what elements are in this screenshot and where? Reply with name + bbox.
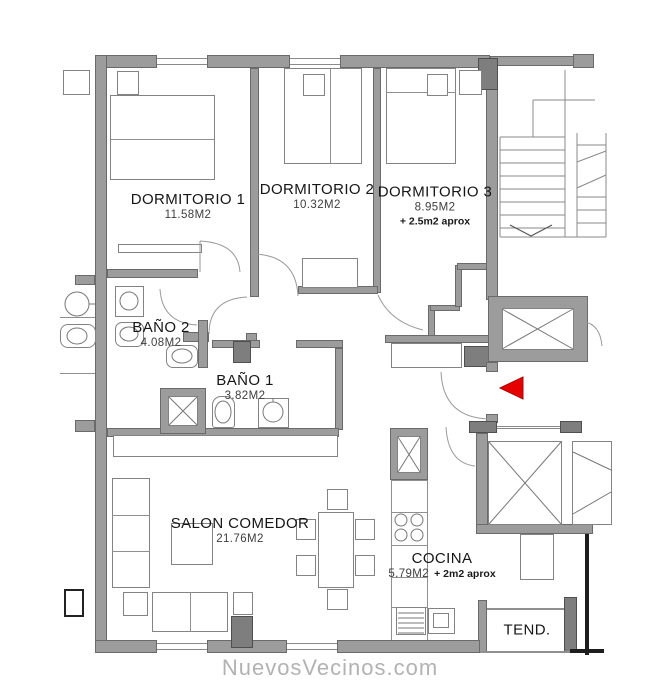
wall xyxy=(198,320,208,368)
room-area: 10.32M2 xyxy=(260,198,375,212)
wall xyxy=(457,263,487,270)
window xyxy=(497,423,560,432)
chimney-column xyxy=(231,616,253,648)
room-area-extra: + 2m2 aprox xyxy=(434,568,496,582)
wall xyxy=(476,524,593,534)
wall xyxy=(385,335,490,343)
nightstand xyxy=(117,71,139,95)
toilet xyxy=(115,286,144,317)
window xyxy=(157,55,207,68)
room-area: 4.08M2 xyxy=(132,336,189,350)
room-area: 21.76M2 xyxy=(171,532,310,546)
stairs xyxy=(500,70,606,237)
wall xyxy=(340,55,490,68)
wall xyxy=(564,597,577,652)
duct-shaft xyxy=(397,436,421,473)
neighbour-sink-icon xyxy=(65,292,89,316)
room-label-bano-1: BAÑO 1 3.82M2 xyxy=(216,372,273,404)
bed xyxy=(110,95,215,180)
stove-burner-icon xyxy=(395,514,407,526)
door-arc xyxy=(255,254,298,296)
wardrobe xyxy=(118,244,202,253)
elevator-shaft xyxy=(502,308,574,350)
wall xyxy=(75,275,95,285)
dining-table xyxy=(318,512,354,588)
watermark: NuevosVecinos.com xyxy=(222,655,438,681)
neighbour-window-frame xyxy=(64,589,84,617)
wall-pillar xyxy=(560,421,582,433)
wall xyxy=(335,348,343,430)
room-area: 5.79M2 xyxy=(388,567,429,581)
wall xyxy=(486,362,498,372)
chair xyxy=(327,489,348,510)
room-label-dormitorio-2: DORMITORIO 2 10.32M2 xyxy=(260,181,375,213)
wall-left xyxy=(95,55,107,652)
wall xyxy=(95,640,157,653)
window xyxy=(290,55,340,68)
room-label-dormitorio-1: DORMITORIO 1 11.58M2 xyxy=(131,191,246,223)
wall-pillar xyxy=(469,421,497,433)
room-label-dormitorio-3: DORMITORIO 3 8.95M2 + 2.5m2 aprox xyxy=(378,183,493,228)
bed-line xyxy=(110,139,215,140)
chair xyxy=(327,589,348,610)
room-name: DORMITORIO 3 xyxy=(378,183,493,200)
duct-shaft xyxy=(168,396,198,426)
room-name: TEND. xyxy=(504,621,551,638)
closet xyxy=(391,343,462,368)
stove-burner-icon xyxy=(411,529,423,541)
sideboard xyxy=(113,435,338,457)
stairs-direction-arrow xyxy=(510,225,552,236)
room-name: BAÑO 1 xyxy=(216,372,273,389)
kitchen-sink-basin xyxy=(433,613,449,628)
wall xyxy=(455,265,462,307)
wall xyxy=(75,420,95,432)
wall xyxy=(250,68,259,297)
wall xyxy=(585,534,589,655)
room-area: 8.95M2 xyxy=(378,201,493,215)
wall xyxy=(476,433,488,532)
sofa-line xyxy=(112,515,150,516)
wall xyxy=(60,317,95,318)
duct-shaft xyxy=(233,341,251,363)
bed-line xyxy=(330,68,331,164)
wall xyxy=(573,54,594,68)
door-arc xyxy=(200,241,240,272)
room-area-extra: + 2.5m2 aprox xyxy=(378,215,493,229)
wall xyxy=(487,608,565,610)
neighbour-fixture xyxy=(60,324,96,348)
door-arc xyxy=(209,297,247,334)
room-label-cocina: COCINA 5.79M2 + 2m2 aprox xyxy=(388,550,495,582)
wall xyxy=(337,640,480,653)
wall xyxy=(60,373,95,374)
balcony-divider xyxy=(520,534,554,580)
pillow xyxy=(303,74,325,96)
sofa-line xyxy=(190,592,191,632)
room-name: DORMITORIO 1 xyxy=(131,191,246,208)
room-name: DORMITORIO 2 xyxy=(260,181,375,198)
room-name: BAÑO 2 xyxy=(132,319,189,336)
room-name: COCINA xyxy=(388,550,495,567)
wall xyxy=(570,649,604,653)
door-arc xyxy=(441,372,488,419)
chair xyxy=(355,555,375,576)
room-name: SALON COMEDOR xyxy=(171,515,310,532)
pillow xyxy=(427,74,448,96)
side-table xyxy=(233,592,253,615)
dresser xyxy=(302,258,358,288)
sofa-line xyxy=(112,551,150,552)
door-arc xyxy=(378,295,423,330)
wall xyxy=(107,269,198,278)
room-label-salon-comedor: SALON COMEDOR 21.76M2 xyxy=(171,515,310,547)
sofa xyxy=(112,478,150,588)
nightstand xyxy=(459,70,482,95)
room-label-tendedero: TEND. xyxy=(504,621,551,638)
elevator-shaft xyxy=(488,441,562,525)
wall xyxy=(296,340,343,348)
room-label-bano-2: BAÑO 2 4.08M2 xyxy=(132,319,189,351)
neighbour-fixture xyxy=(63,70,90,95)
counter xyxy=(391,480,428,481)
window xyxy=(157,640,207,653)
counter xyxy=(391,545,428,546)
stove-burner-icon xyxy=(411,514,423,526)
counter xyxy=(391,512,428,513)
chair xyxy=(296,555,316,576)
wall-right xyxy=(486,60,498,300)
room-area: 3.82M2 xyxy=(216,389,273,403)
floor-plan: DORMITORIO 1 11.58M2 DORMITORIO 2 10.32M… xyxy=(0,0,664,700)
side-table xyxy=(123,592,148,616)
stove-burner-icon xyxy=(395,529,407,541)
elevator-shaft xyxy=(572,441,612,525)
window xyxy=(287,640,337,653)
radiator xyxy=(396,607,426,635)
wall xyxy=(207,55,290,68)
entrance-arrow-icon xyxy=(500,377,523,399)
room-area: 11.58M2 xyxy=(131,208,246,222)
chair xyxy=(355,519,375,540)
